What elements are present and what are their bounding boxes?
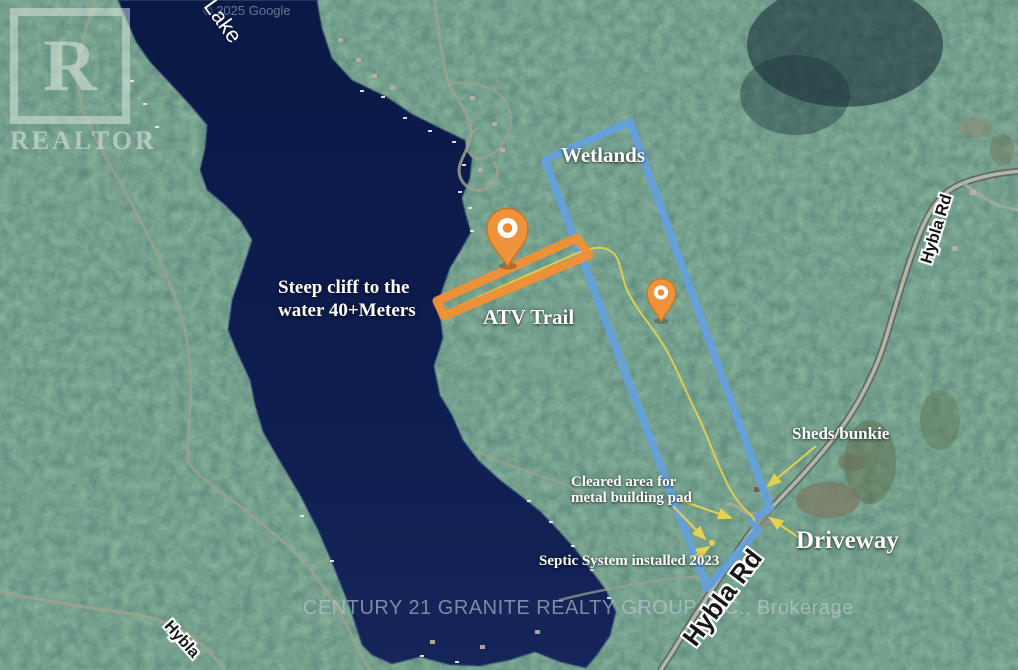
satellite-map: R REALTOR © 2025 Google CENTURY 21 GRANI… [0, 0, 1018, 670]
realtor-watermark: R REALTOR [10, 8, 157, 156]
realtor-logo-text: REALTOR [10, 126, 157, 156]
septic-label: Septic System installed 2023 [539, 553, 719, 570]
cleared-area-line1: Cleared area for [571, 474, 692, 490]
cleared-area-line2: metal building pad [571, 490, 692, 506]
realtor-logo-letter: R [43, 24, 96, 109]
driveway-label: Driveway [796, 527, 899, 556]
steep-cliff-line1: Steep cliff to the [278, 276, 416, 299]
cleared-area-label: Cleared area for metal building pad [571, 474, 692, 506]
steep-cliff-line2: water 40+Meters [278, 299, 416, 322]
septic-location-dot [709, 540, 715, 546]
realtor-logo-box: R [10, 8, 130, 124]
steep-cliff-label: Steep cliff to the water 40+Meters [278, 276, 416, 322]
atv-trail-label: ATV Trail [483, 305, 574, 329]
wetlands-label: Wetlands [561, 143, 645, 167]
brokerage-watermark: CENTURY 21 GRANITE REALTY GROUP INC., Br… [303, 597, 854, 620]
sheds-bunkie-label: Sheds/bunkie [792, 424, 889, 444]
